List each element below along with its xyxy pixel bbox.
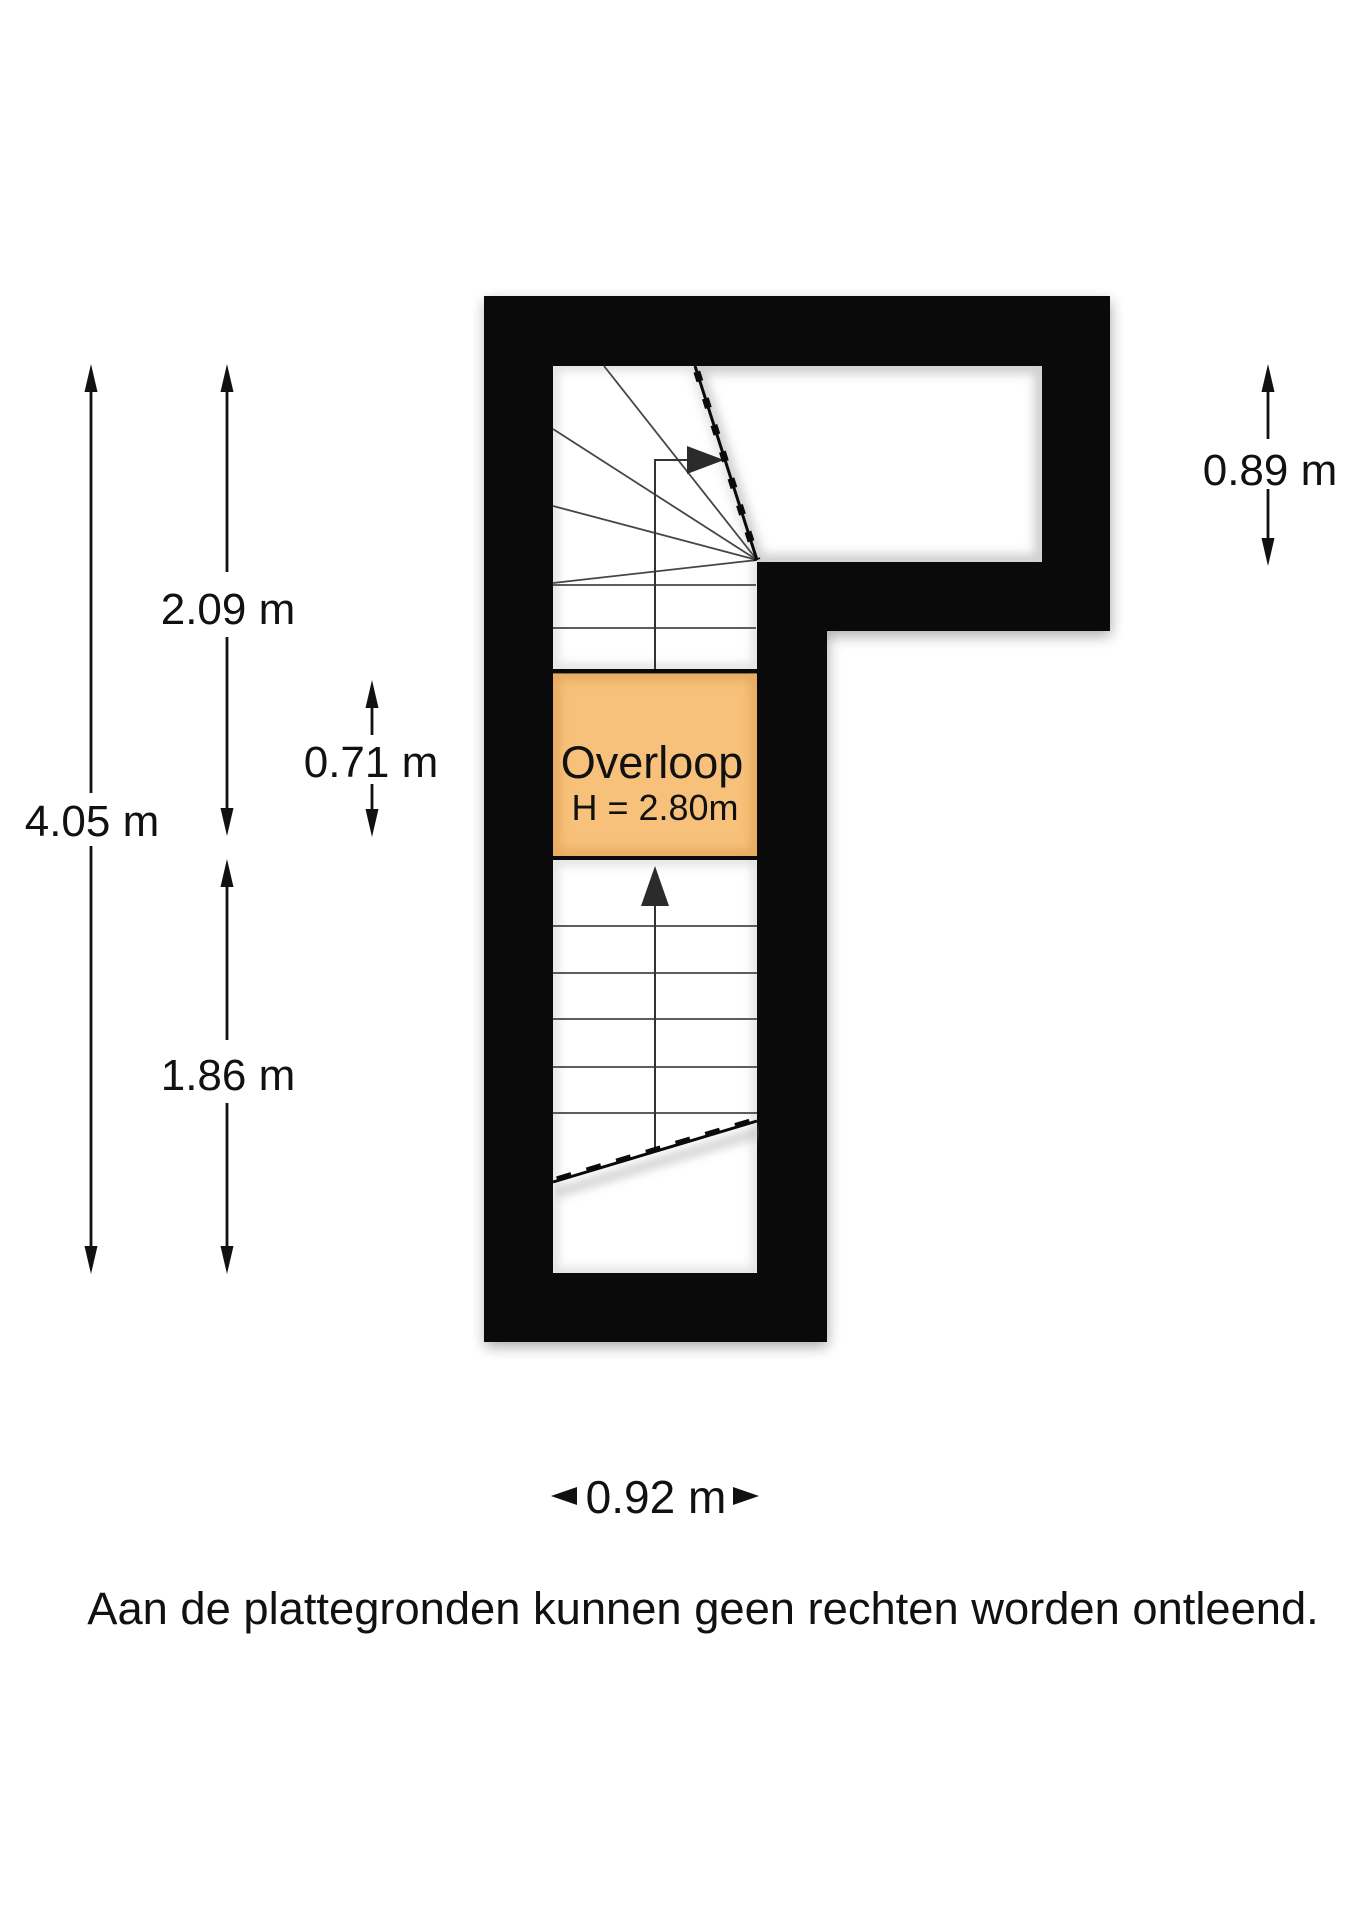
svg-text:0.71 m: 0.71 m <box>304 738 439 787</box>
svg-text:0.89 m: 0.89 m <box>1203 446 1338 495</box>
svg-text:H = 2.80m: H = 2.80m <box>571 787 738 828</box>
svg-text:Overloop: Overloop <box>561 737 744 788</box>
svg-text:0.92 m: 0.92 m <box>586 1471 727 1523</box>
svg-text:Aan de plattegronden kunnen ge: Aan de plattegronden kunnen geen rechten… <box>87 1583 1319 1634</box>
svg-text:4.05 m: 4.05 m <box>25 797 160 846</box>
svg-text:1.86 m: 1.86 m <box>161 1051 296 1100</box>
svg-text:2.09 m: 2.09 m <box>161 585 296 634</box>
